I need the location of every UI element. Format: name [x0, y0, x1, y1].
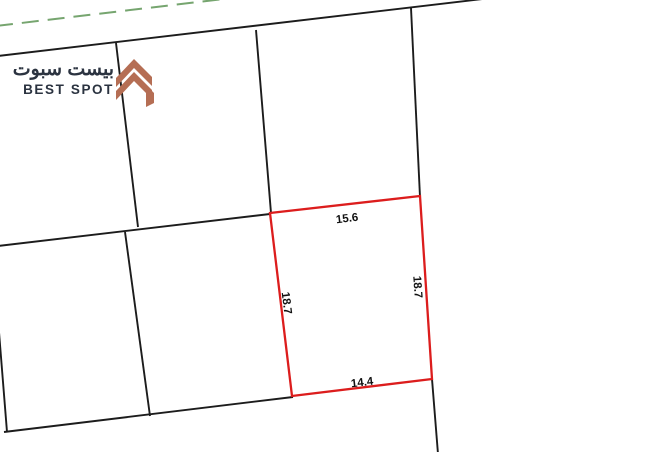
logo-arabic-text: بيست سبوت — [8, 60, 114, 81]
dimension-label-bottom: 14.4 — [350, 376, 374, 391]
best-spot-chevron-icon — [113, 56, 159, 110]
boundary-line-upper-middle-vertical — [256, 30, 271, 213]
boundary-line-middle-horizontal — [0, 214, 270, 246]
dashed-boundary-line — [0, 0, 240, 26]
logo-english-text: BEST SPOT — [8, 83, 114, 98]
boundary-line-far-left-vertical — [0, 332, 7, 432]
dimension-label-top: 15.6 — [335, 212, 359, 227]
highlighted-plot-outline — [270, 196, 432, 396]
boundary-line-top — [0, 0, 491, 56]
best-spot-logo: بيست سبوت BEST SPOT — [8, 60, 114, 98]
plot-map: 15.6 18.7 18.7 14.4 بيست سبوت BEST SPOT — [0, 0, 668, 452]
boundary-line-lower-left-vertical — [125, 232, 150, 416]
boundary-line-right-vertical-upper — [411, 8, 420, 197]
dimension-label-right: 18.7 — [410, 275, 424, 298]
boundary-line-right-vertical-lower — [432, 379, 438, 452]
